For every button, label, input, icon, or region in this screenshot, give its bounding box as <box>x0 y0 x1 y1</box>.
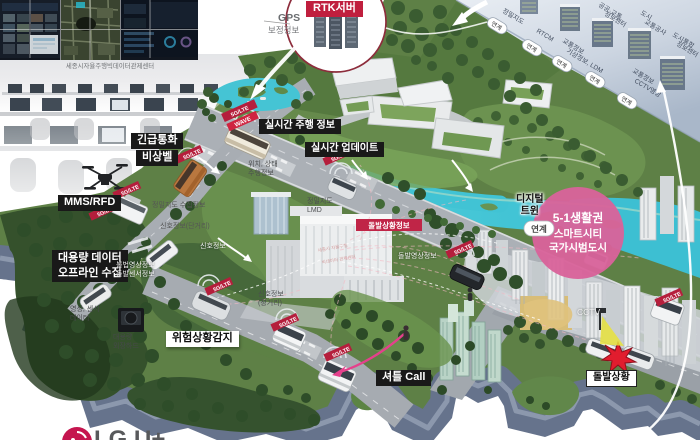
svg-text:LG U+: LG U+ <box>94 426 165 440</box>
svg-text:스마트시티: 스마트시티 <box>554 227 602 240</box>
svg-text:5-1생활권: 5-1생활권 <box>553 210 603 225</box>
svg-text:연계: 연계 <box>531 224 547 234</box>
svg-text:국가시범도시: 국가시범도시 <box>549 241 607 254</box>
svg-text:세종시자율주행빅데이터관제센터: 세종시자율주행빅데이터관제센터 <box>66 61 154 70</box>
svg-text:돌발상황정보: 돌발상황정보 <box>368 220 409 230</box>
